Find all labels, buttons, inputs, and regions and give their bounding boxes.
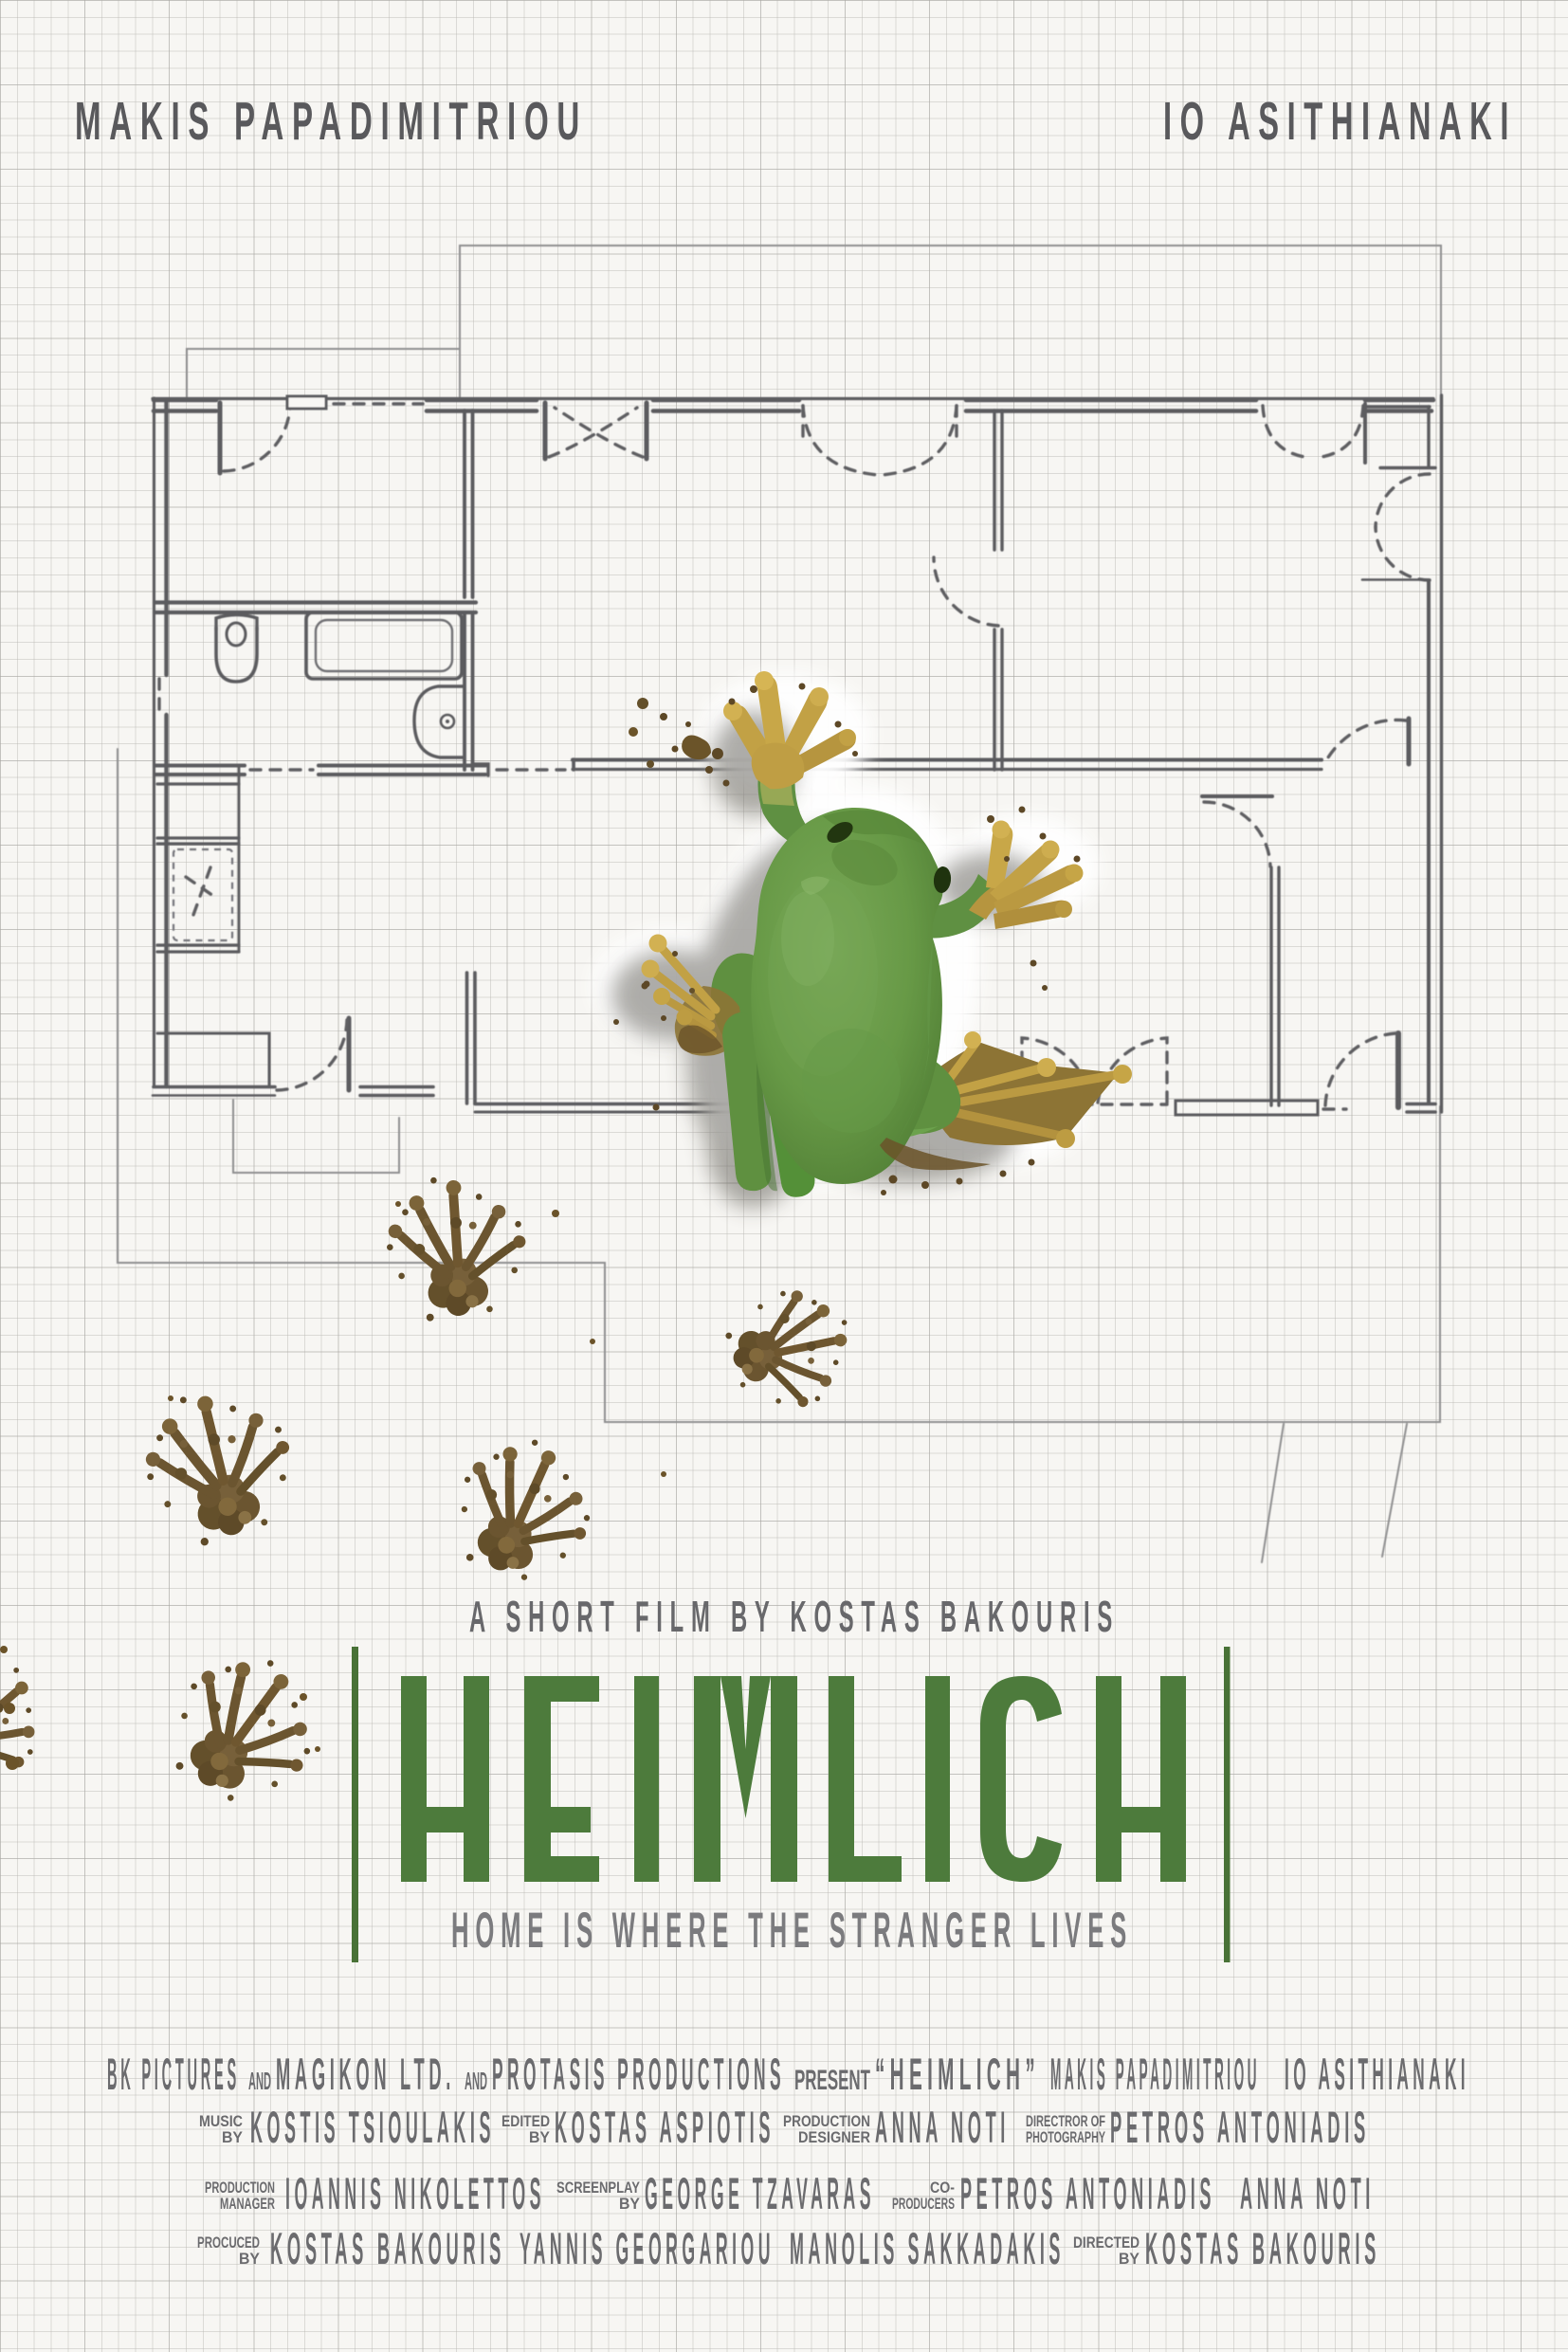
svg-text:AND: AND xyxy=(465,2067,487,2095)
svg-text:“HEIMLICH”: “HEIMLICH” xyxy=(875,2049,1040,2099)
svg-text:PRODUCERS: PRODUCERS xyxy=(892,2195,955,2213)
svg-text:IOANNIS NIKOLETTOS: IOANNIS NIKOLETTOS xyxy=(285,2168,545,2218)
svg-text:KOSTIS TSIOULAKIS: KOSTIS TSIOULAKIS xyxy=(250,2102,495,2152)
svg-text:MAKIS PAPADIMITRIOU: MAKIS PAPADIMITRIOU xyxy=(75,91,588,152)
svg-text:DESIGNER: DESIGNER xyxy=(798,2128,870,2146)
svg-text:MAGIKON LTD.: MAGIKON LTD. xyxy=(276,2049,455,2099)
svg-text:PETROS ANTONIADIS: PETROS ANTONIADIS xyxy=(960,2168,1215,2218)
svg-text:MANAGER: MANAGER xyxy=(220,2195,275,2213)
svg-text:BY: BY xyxy=(222,2128,244,2146)
svg-text:IO ASITHIANAKI: IO ASITHIANAKI xyxy=(1285,2049,1469,2099)
svg-text:HOME IS WHERE THE STRANGER LIV: HOME IS WHERE THE STRANGER LIVES xyxy=(451,1903,1133,1959)
svg-text:BY: BY xyxy=(1119,2250,1140,2268)
svg-text:A SHORT FILM BY KOSTAS BAKOURI: A SHORT FILM BY KOSTAS BAKOURIS xyxy=(469,1592,1120,1641)
svg-text:PROTASIS PRODUCTIONS: PROTASIS PRODUCTIONS xyxy=(492,2049,785,2099)
svg-text:KOSTAS BAKOURIS: KOSTAS BAKOURIS xyxy=(270,2223,505,2273)
svg-text:IO ASITHIANAKI: IO ASITHIANAKI xyxy=(1163,91,1517,152)
svg-text:ANNA NOTI: ANNA NOTI xyxy=(1240,2168,1375,2218)
svg-text:KOSTAS BAKOURIS: KOSTAS BAKOURIS xyxy=(1145,2223,1380,2273)
svg-text:BY: BY xyxy=(619,2195,641,2213)
svg-text:YANNIS GEORGARIOU: YANNIS GEORGARIOU xyxy=(520,2223,775,2273)
svg-text:AND: AND xyxy=(248,2067,271,2095)
svg-text:PRESENT: PRESENT xyxy=(794,2065,870,2096)
svg-text:GEORGE TZAVARAS: GEORGE TZAVARAS xyxy=(645,2168,875,2218)
svg-text:MAKIS PAPADIMITRIOU: MAKIS PAPADIMITRIOU xyxy=(1050,2049,1260,2099)
svg-text:MANOLIS SAKKADAKIS: MANOLIS SAKKADAKIS xyxy=(790,2223,1065,2273)
svg-text:ANNA NOTI: ANNA NOTI xyxy=(875,2102,1010,2152)
svg-text:PETROS ANTONIADIS: PETROS ANTONIADIS xyxy=(1110,2102,1370,2152)
svg-text:PHOTOGRAPHY: PHOTOGRAPHY xyxy=(1026,2128,1105,2146)
svg-text:BK PICTURES: BK PICTURES xyxy=(107,2049,240,2099)
svg-text:BY: BY xyxy=(239,2250,261,2268)
svg-text:KOSTAS ASPIOTIS: KOSTAS ASPIOTIS xyxy=(555,2102,775,2152)
svg-text:BY: BY xyxy=(529,2128,551,2146)
